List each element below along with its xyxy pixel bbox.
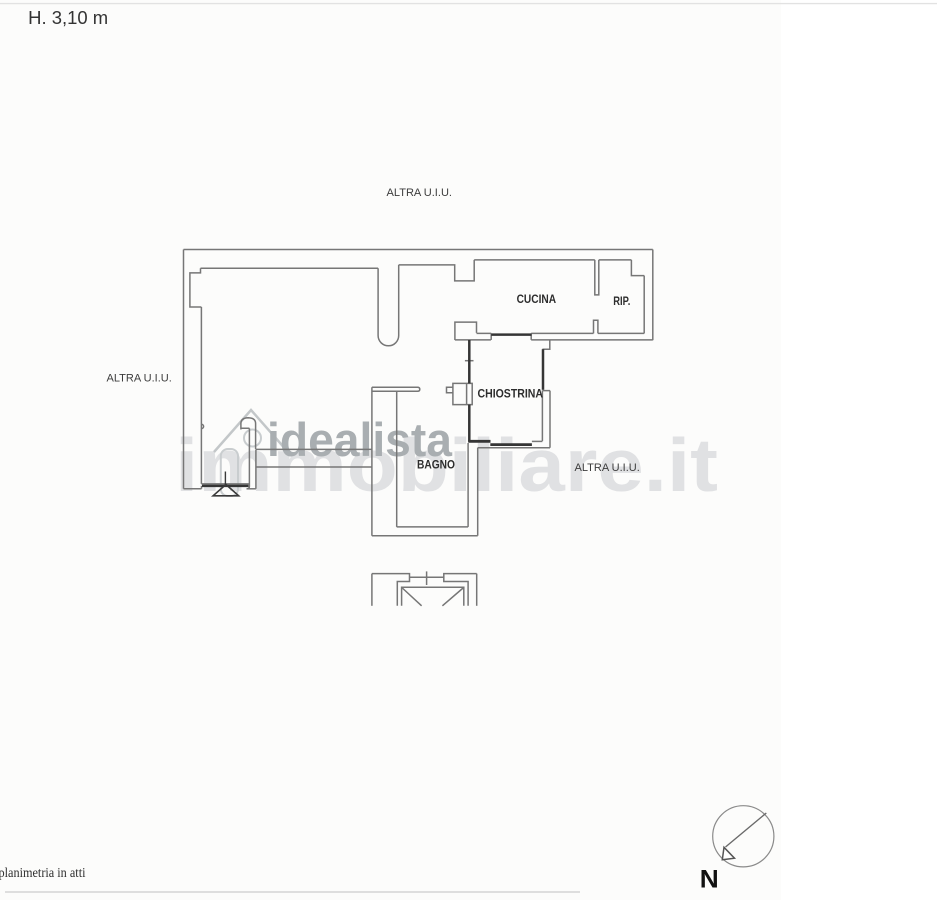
- svg-text:CHIOSTRINA: CHIOSTRINA: [478, 387, 544, 401]
- svg-text:CUCINA: CUCINA: [517, 292, 557, 306]
- svg-text:BAGNO: BAGNO: [417, 458, 455, 472]
- svg-text:ALTRA U.I.U.: ALTRA U.I.U.: [575, 462, 640, 474]
- svg-text:ALTRA U.I.U.: ALTRA U.I.U.: [387, 187, 453, 199]
- svg-text:planimetria in atti: planimetria in atti: [0, 865, 86, 880]
- svg-text:H. 3,10 m: H. 3,10 m: [28, 7, 108, 28]
- svg-text:RIP.: RIP.: [613, 294, 630, 308]
- svg-text:N: N: [700, 866, 719, 894]
- svg-text:ALTRA U.I.U.: ALTRA U.I.U.: [107, 372, 172, 384]
